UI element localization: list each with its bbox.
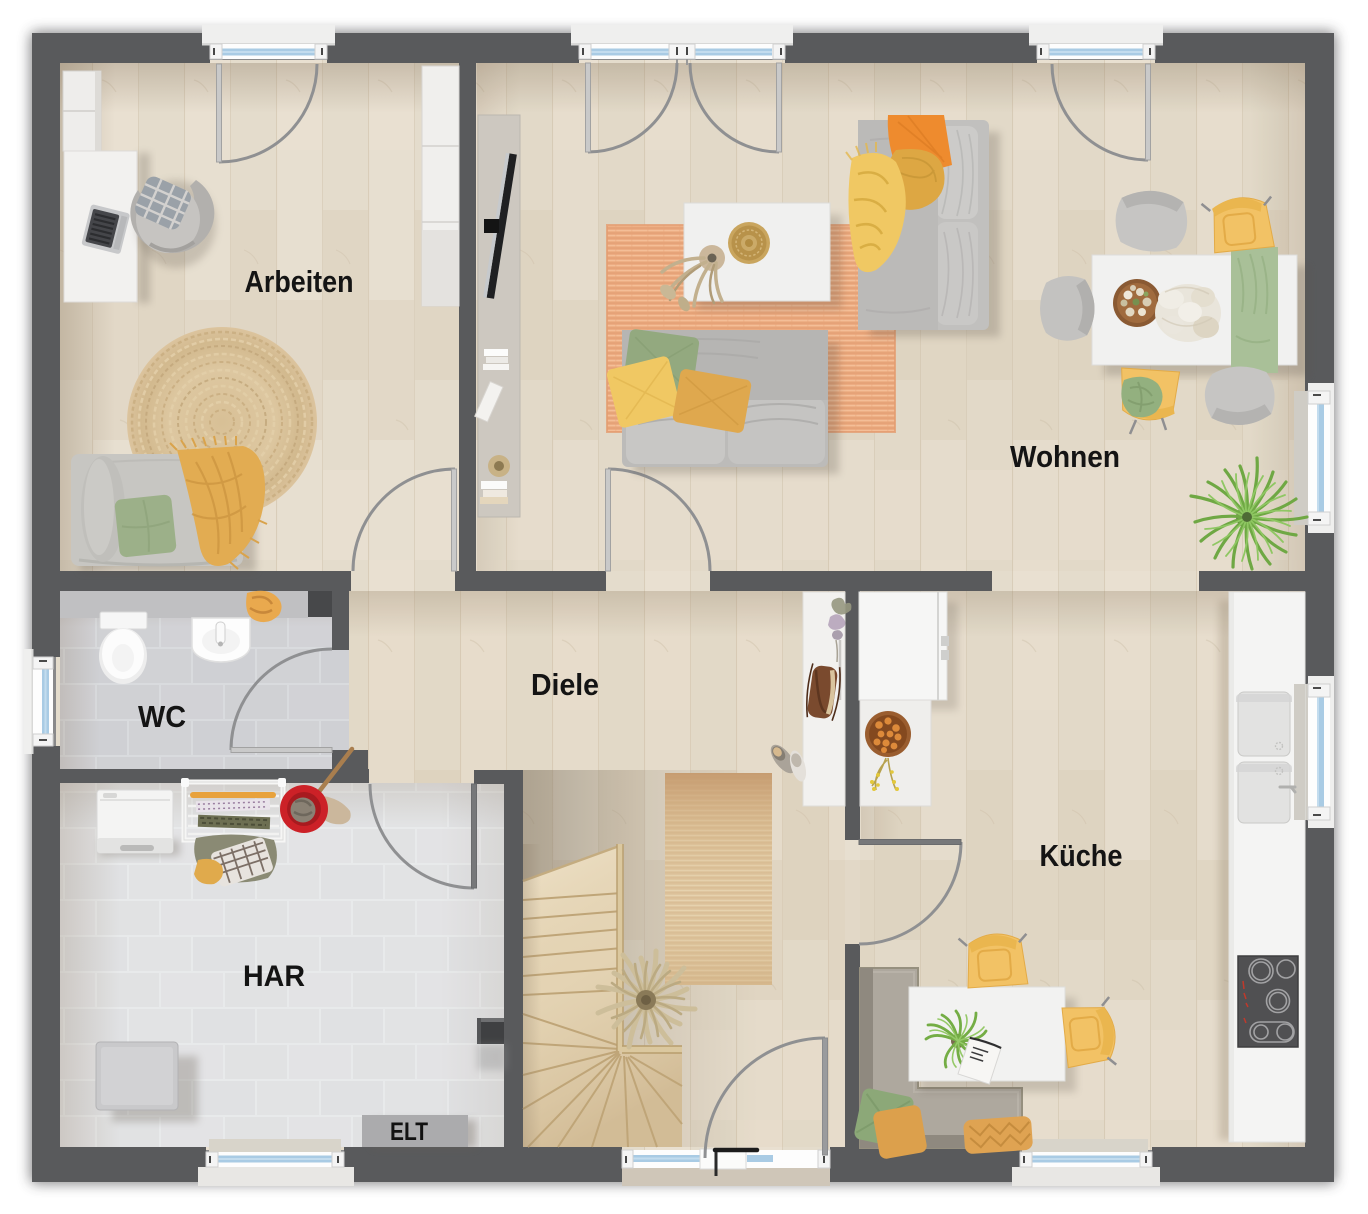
svg-text:ELT: ELT <box>390 1118 428 1146</box>
svg-text:Arbeiten: Arbeiten <box>245 264 354 299</box>
svg-text:Wohnen: Wohnen <box>1010 439 1120 474</box>
svg-text:WC: WC <box>138 699 186 734</box>
svg-text:Küche: Küche <box>1040 838 1123 873</box>
svg-text:HAR: HAR <box>243 960 305 993</box>
svg-text:Diele: Diele <box>531 667 599 702</box>
